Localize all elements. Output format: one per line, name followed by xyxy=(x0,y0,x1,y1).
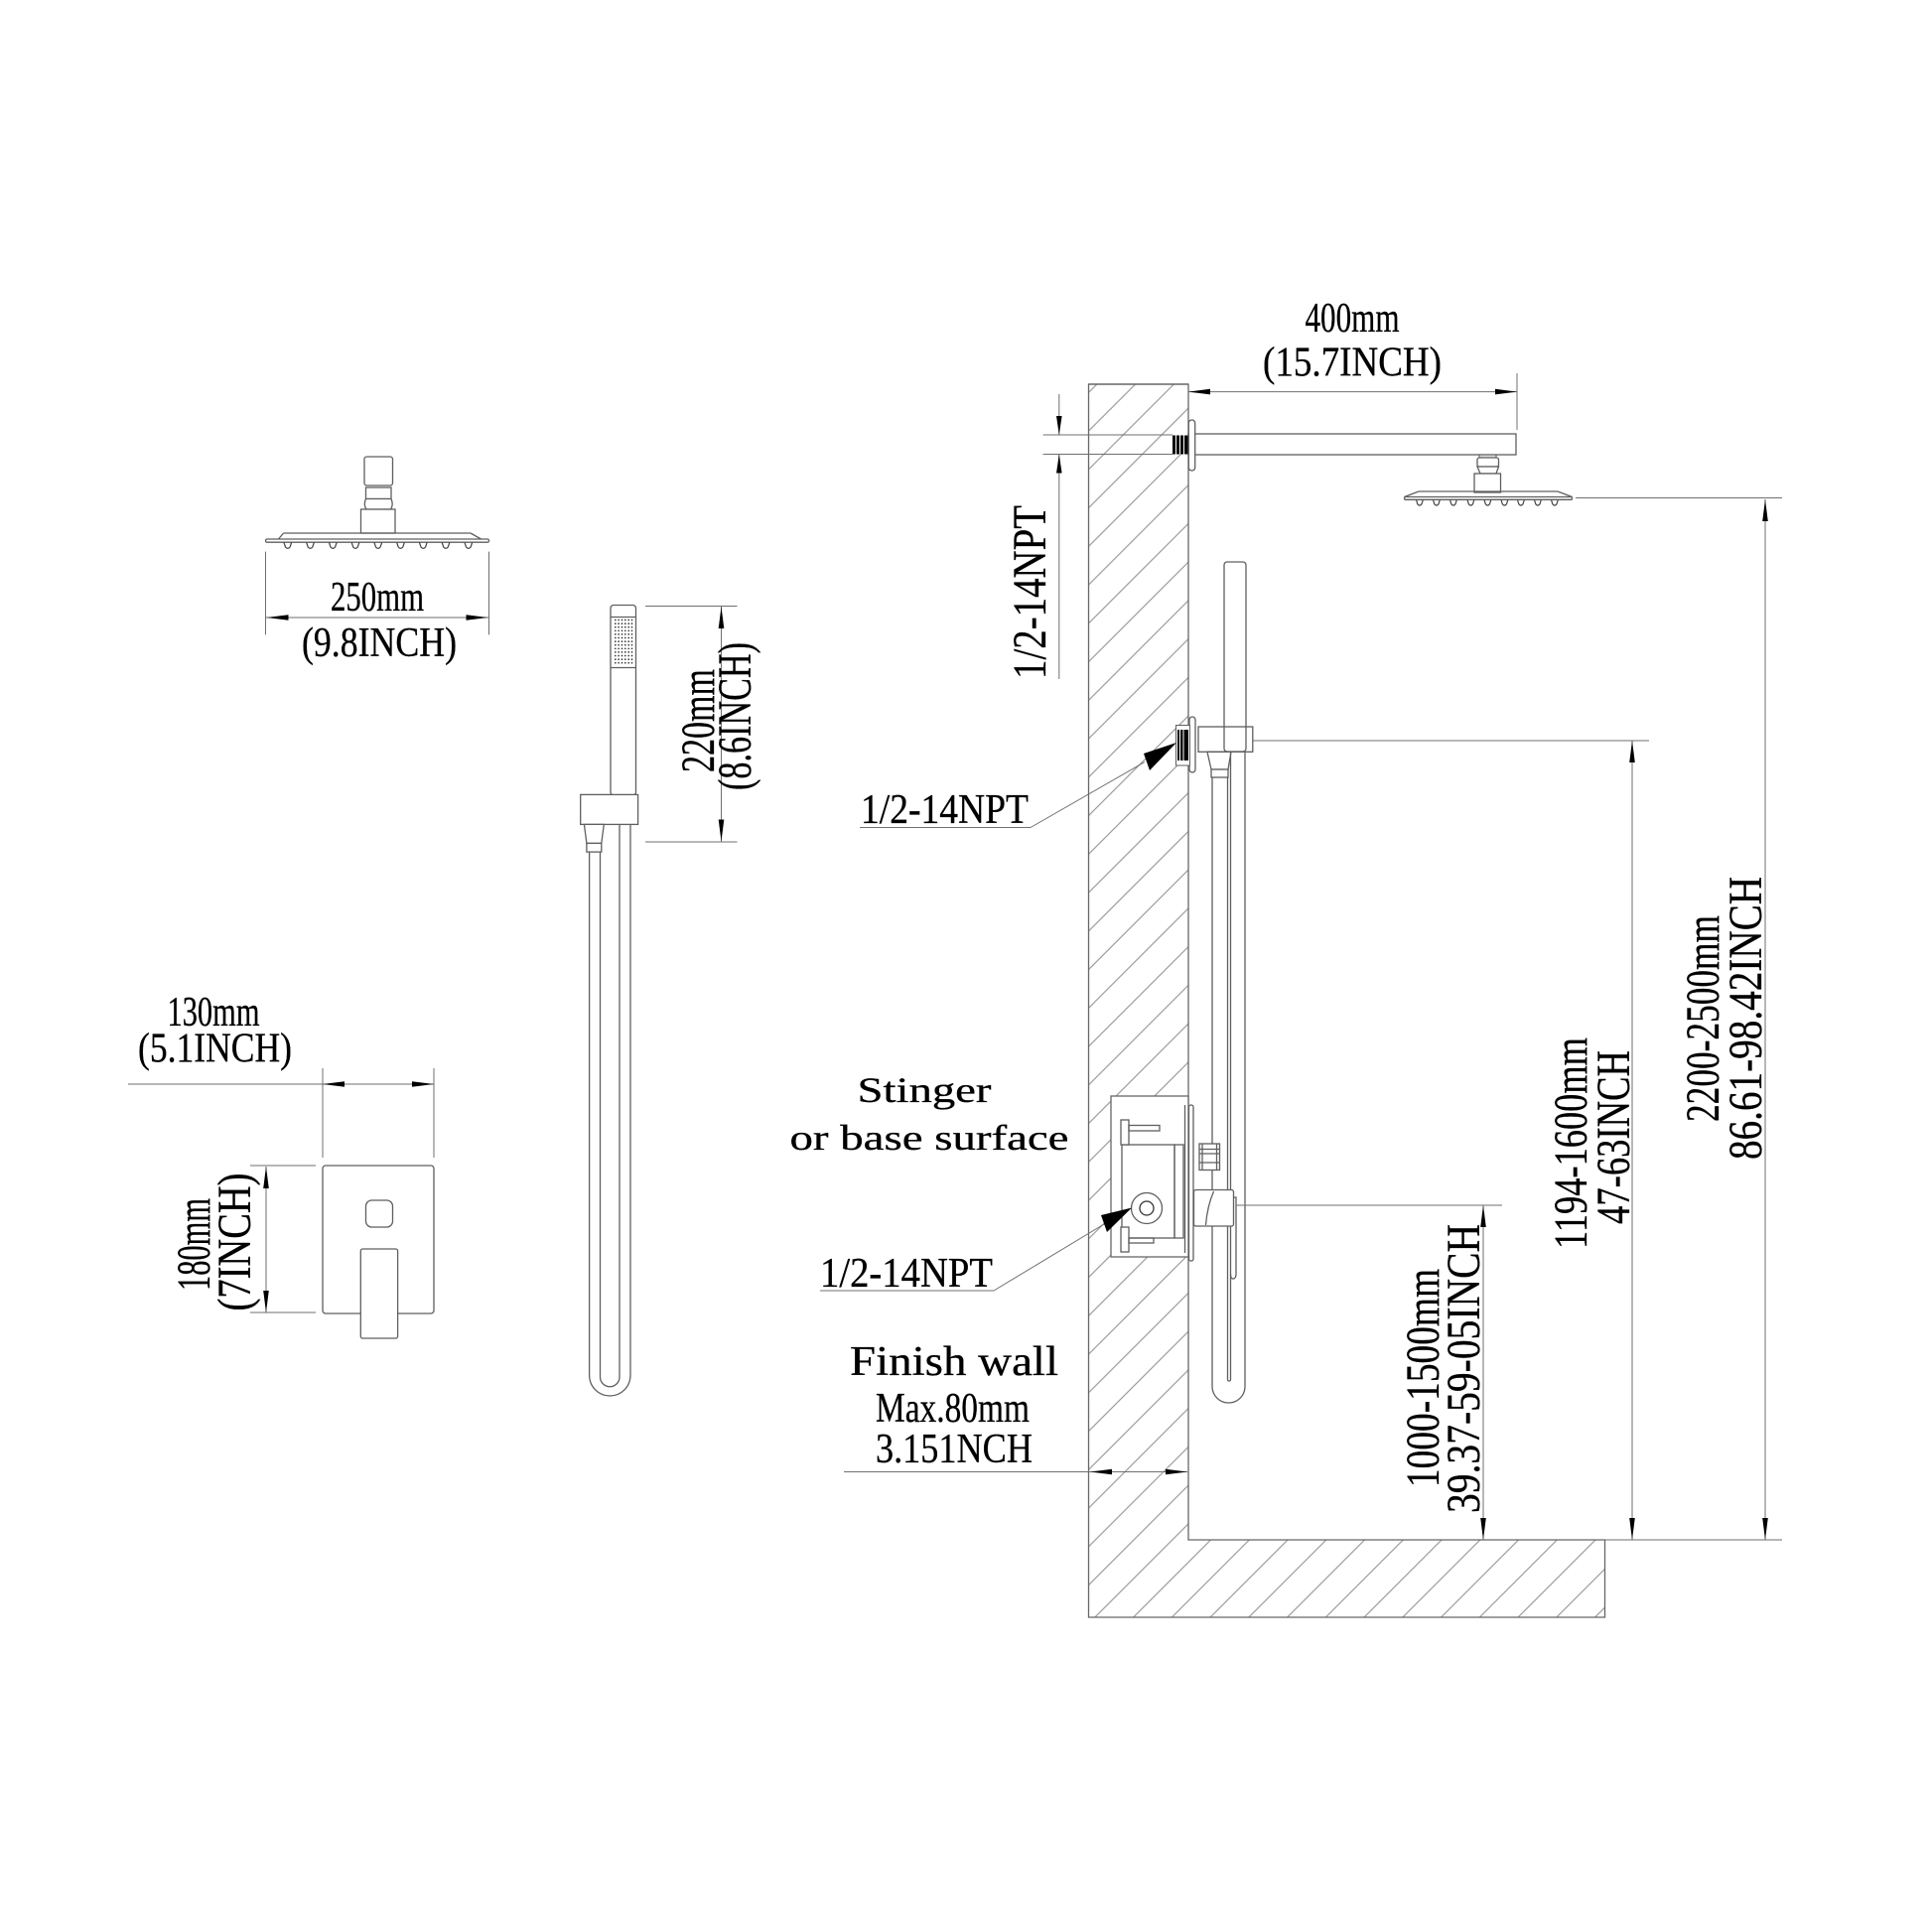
svg-text:(9.8INCH): (9.8INCH) xyxy=(302,621,457,666)
svg-text:or base surface: or base surface xyxy=(790,1118,1069,1158)
svg-text:(8.6INCH): (8.6INCH) xyxy=(709,642,761,790)
svg-text:1/2-14NPT: 1/2-14NPT xyxy=(820,1251,993,1297)
svg-text:86.61-98.42INCH: 86.61-98.42INCH xyxy=(1720,877,1772,1160)
svg-text:Max.80mm: Max.80mm xyxy=(876,1386,1030,1432)
svg-text:3.151NCH: 3.151NCH xyxy=(876,1427,1033,1472)
svg-text:47-63INCH: 47-63INCH xyxy=(1587,1050,1640,1224)
svg-text:(7INCH): (7INCH) xyxy=(208,1173,261,1311)
svg-text:Finish wall: Finish wall xyxy=(850,1339,1058,1385)
svg-text:1/2-14NPT: 1/2-14NPT xyxy=(861,787,1029,833)
svg-text:Stinger: Stinger xyxy=(858,1070,992,1110)
svg-text:250mm: 250mm xyxy=(331,575,424,621)
svg-text:1/2-14NPT: 1/2-14NPT xyxy=(1004,505,1056,679)
svg-text:(5.1INCH): (5.1INCH) xyxy=(138,1027,292,1072)
svg-text:39.37-59-05INCH: 39.37-59-05INCH xyxy=(1438,1224,1490,1513)
svg-text:(15.7INCH): (15.7INCH) xyxy=(1263,341,1442,386)
svg-text:400mm: 400mm xyxy=(1306,296,1400,342)
